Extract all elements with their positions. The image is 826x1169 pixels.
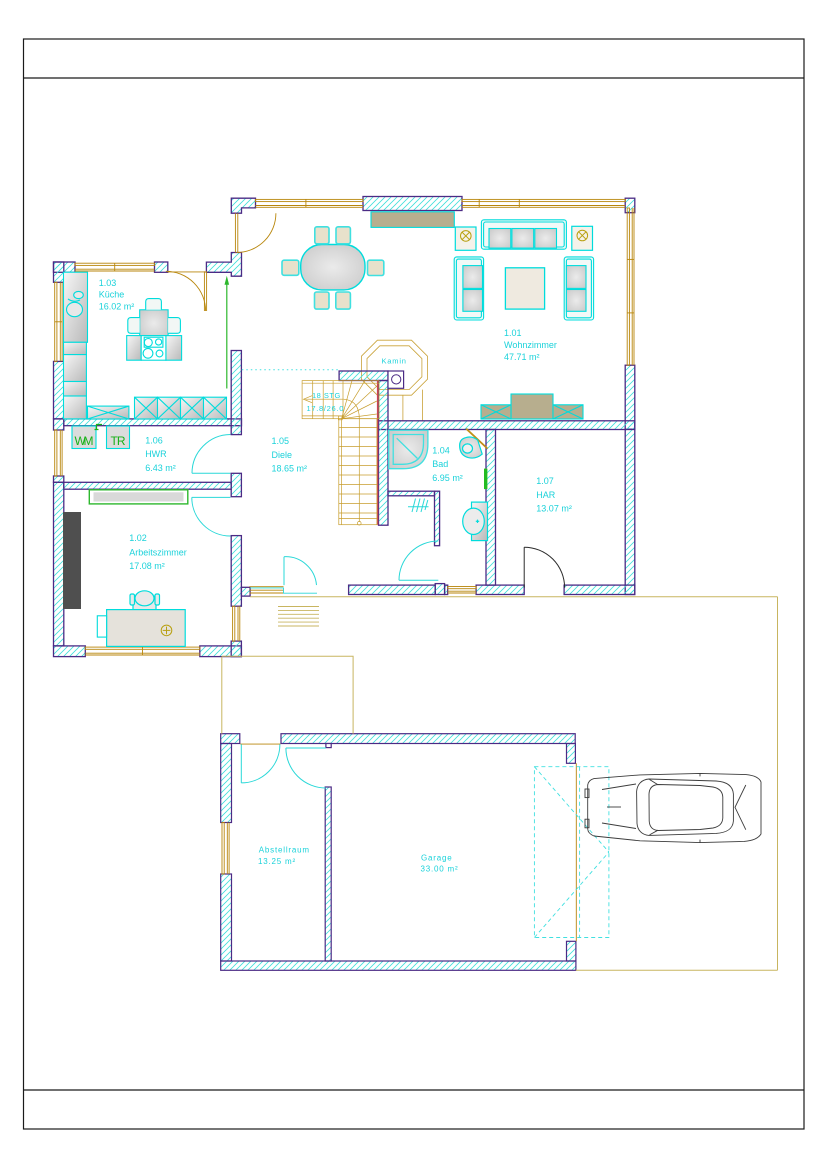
svg-text:1.06: 1.06 (145, 436, 163, 446)
svg-text:Garage: Garage (421, 854, 452, 863)
svg-text:18 STG: 18 STG (312, 391, 341, 400)
svg-text:HWR: HWR (145, 449, 167, 459)
svg-text:HAR: HAR (536, 490, 556, 500)
svg-text:18.65 m²: 18.65 m² (272, 464, 308, 474)
svg-text:6.95 m²: 6.95 m² (432, 473, 463, 483)
svg-text:13.07 m²: 13.07 m² (536, 504, 572, 514)
svg-text:1.01: 1.01 (504, 328, 522, 338)
svg-text:WM: WM (75, 434, 94, 448)
svg-text:33.00 m²: 33.00 m² (421, 865, 459, 874)
svg-text:1.07: 1.07 (536, 476, 554, 486)
svg-text:1.05: 1.05 (272, 436, 290, 446)
svg-text:13.25 m²: 13.25 m² (258, 857, 296, 866)
svg-text:17.08 m²: 17.08 m² (129, 561, 165, 571)
svg-text:Arbeitszimmer: Arbeitszimmer (129, 548, 187, 558)
svg-text:Diele: Diele (272, 450, 293, 460)
svg-text:Abstellraum: Abstellraum (259, 846, 310, 855)
svg-text:1.04: 1.04 (432, 446, 450, 456)
svg-text:47.71 m²: 47.71 m² (504, 352, 540, 362)
svg-text:Wohnzimmer: Wohnzimmer (504, 340, 557, 350)
svg-text:Kamin: Kamin (382, 357, 407, 366)
svg-text:TR: TR (111, 434, 126, 448)
svg-text:1.03: 1.03 (99, 278, 117, 288)
svg-text:1.02: 1.02 (129, 533, 147, 543)
svg-text:16.02 m²: 16.02 m² (99, 302, 135, 312)
svg-text:17.8/26.0: 17.8/26.0 (307, 404, 345, 413)
svg-text:6.43 m²: 6.43 m² (145, 463, 176, 473)
svg-text:Bad: Bad (432, 459, 448, 469)
svg-text:Küche: Küche (99, 290, 125, 300)
